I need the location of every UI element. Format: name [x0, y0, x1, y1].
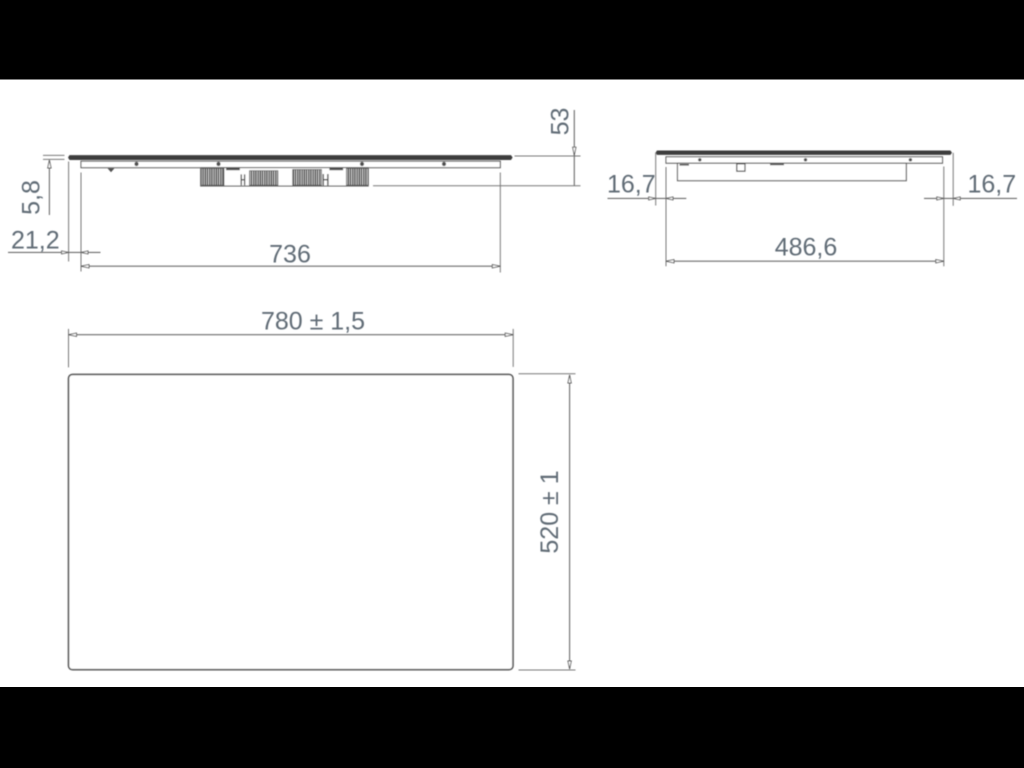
svg-text:53: 53: [547, 108, 575, 136]
svg-text:5,8: 5,8: [18, 180, 46, 215]
svg-text:486,6: 486,6: [775, 233, 838, 261]
svg-text:21,2: 21,2: [11, 227, 60, 255]
svg-text:736: 736: [269, 240, 311, 268]
svg-text:780 ± 1,5: 780 ± 1,5: [261, 308, 365, 336]
svg-text:16,7: 16,7: [607, 170, 656, 198]
svg-text:520 ± 1: 520 ± 1: [536, 470, 564, 553]
svg-text:16,7: 16,7: [968, 170, 1017, 198]
